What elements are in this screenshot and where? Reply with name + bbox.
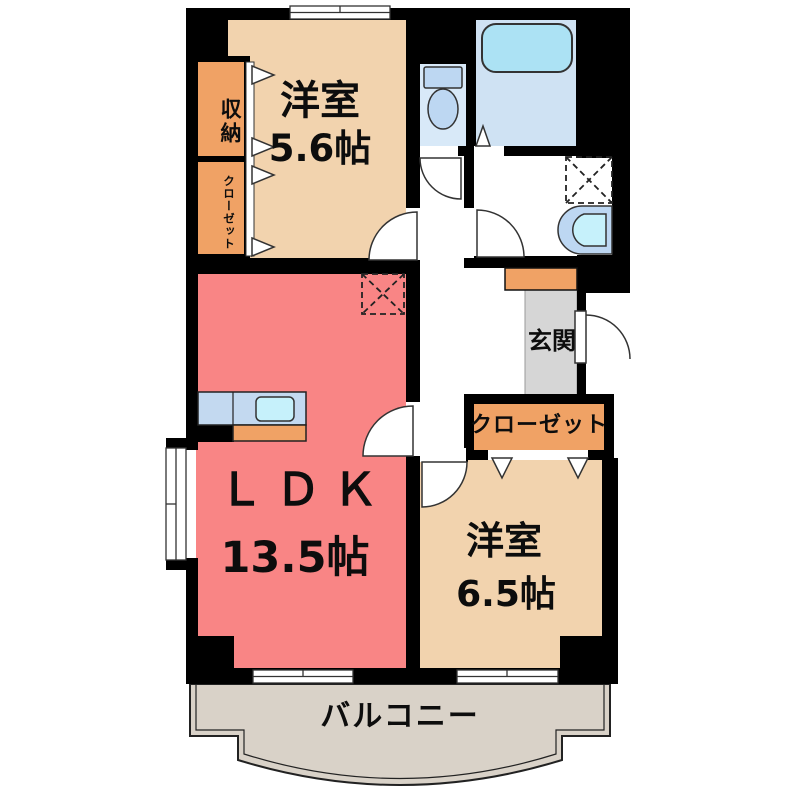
closet-main-label: クローゼット (470, 414, 608, 437)
door-arc-toilet (420, 158, 461, 199)
window-ldk-bottom (253, 670, 353, 683)
wall-kitchen (186, 424, 234, 442)
entrance-label: 玄関 (519, 329, 585, 354)
storage-label: 収納 (203, 84, 241, 160)
floorplan-canvas: 洋室 5.6帖 収納 クローゼット ＬＤＫ 13.5帖 玄関 クローゼット 洋室… (0, 0, 800, 800)
bathtub (482, 24, 572, 72)
wall-right-upper (612, 8, 630, 268)
shoe-cabinet (505, 268, 577, 290)
opening-western2 (420, 448, 466, 462)
western1-room-label: 洋室 (238, 80, 402, 122)
opening-bathroom (474, 146, 504, 156)
toilet-bowl (428, 89, 458, 129)
door-arc-washroom (477, 210, 524, 257)
toilet-tank (424, 67, 462, 88)
wall-entrance-corner (577, 255, 630, 293)
wall-toilet-bath (466, 8, 476, 156)
opening-toilet (420, 146, 458, 156)
ldk-room-size: 13.5帖 (182, 536, 408, 581)
door-arc-entrance (586, 315, 630, 359)
wall-above-toilet (420, 8, 466, 64)
wall-ldk-hall (406, 258, 420, 404)
kitchen-counter-base (233, 425, 306, 441)
ldk-room-label: ＬＤＫ (190, 466, 406, 513)
western2-room-label: 洋室 (422, 522, 586, 562)
window-western2-bottom (457, 670, 558, 683)
wall-entrance-upper (577, 293, 586, 313)
opening-washroom (464, 208, 474, 258)
wall-ldk-western2 (406, 455, 420, 680)
balcony-label: バルコニー (270, 701, 530, 733)
window-top (290, 6, 390, 19)
washbasin-bowl (573, 214, 606, 246)
western2-room-size: 6.5帖 (422, 576, 590, 614)
wall-entrance-lower (577, 362, 586, 396)
western1-room-size: 5.6帖 (238, 130, 402, 169)
wall-left-mid (186, 274, 198, 450)
pillar-bottom-right (560, 636, 614, 684)
closet-side-label: クローゼット (209, 168, 235, 256)
kitchen-sink (256, 397, 294, 421)
